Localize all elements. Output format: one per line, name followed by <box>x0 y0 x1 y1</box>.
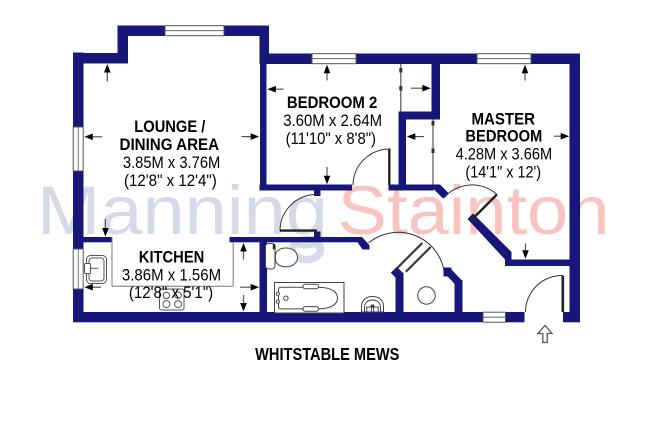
svg-text:Stainton: Stainton <box>338 172 610 249</box>
svg-text:3.85M x 3.76M: 3.85M x 3.76M <box>123 153 220 172</box>
svg-text:(11'10" x 8'8"): (11'10" x 8'8") <box>286 129 376 148</box>
svg-text:(14'1" x 12'): (14'1" x 12') <box>465 162 541 181</box>
svg-text:LOUNGE /: LOUNGE / <box>134 117 205 136</box>
svg-text:3.60M x 2.64M: 3.60M x 2.64M <box>283 111 382 130</box>
svg-text:BEDROOM: BEDROOM <box>465 127 542 146</box>
svg-text:DINING AREA: DINING AREA <box>120 135 220 154</box>
svg-text:4.28M x 3.66M: 4.28M x 3.66M <box>456 145 552 164</box>
svg-text:WHITSTABLE MEWS: WHITSTABLE MEWS <box>255 344 399 364</box>
svg-text:KITCHEN: KITCHEN <box>139 248 205 267</box>
svg-text:3.86M x 1.56M: 3.86M x 1.56M <box>122 265 221 284</box>
svg-text:(12'8" x 5'1"): (12'8" x 5'1") <box>129 283 213 302</box>
svg-text:(12'8" x 12'4"): (12'8" x 12'4") <box>124 171 217 190</box>
svg-text:MASTER: MASTER <box>472 109 536 128</box>
svg-text:BEDROOM 2: BEDROOM 2 <box>287 93 377 112</box>
